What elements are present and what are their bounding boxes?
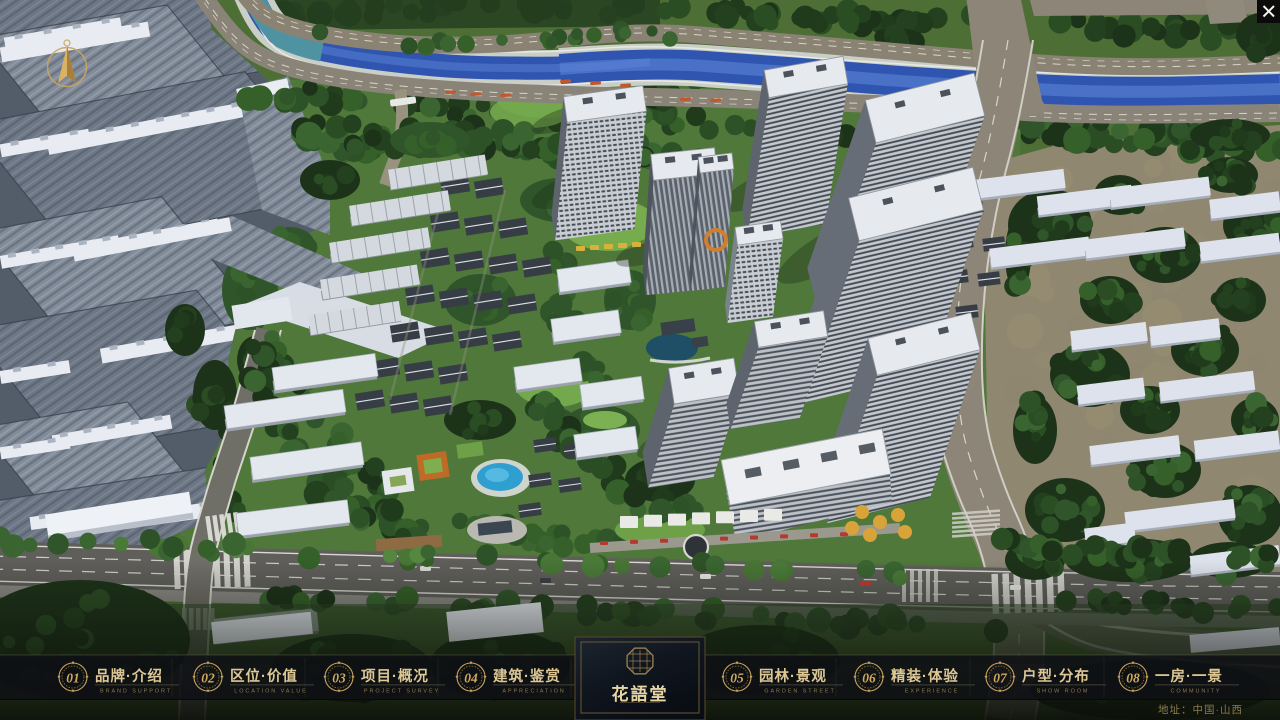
svg-text:LOCATION VALUE: LOCATION VALUE — [234, 689, 307, 695]
svg-text:地址：中国·山西: 地址：中国·山西 — [1158, 703, 1243, 716]
svg-text:05: 05 — [730, 671, 744, 686]
svg-text:品牌·介绍: 品牌·介绍 — [95, 667, 163, 685]
svg-text:PROJECT SURVEY: PROJECT SURVEY — [364, 689, 440, 695]
svg-text:园林·景观: 园林·景观 — [759, 667, 827, 685]
svg-text:BRAND SUPPORT: BRAND SUPPORT — [100, 689, 172, 695]
svg-text:06: 06 — [862, 671, 876, 686]
svg-text:一房·一景: 一房·一景 — [1155, 667, 1223, 685]
svg-text:EXPERIENCE: EXPERIENCE — [905, 689, 959, 695]
svg-text:01: 01 — [66, 671, 80, 686]
svg-text:建筑·鉴赏: 建筑·鉴赏 — [493, 667, 561, 685]
svg-text:03: 03 — [332, 671, 346, 686]
svg-text:04: 04 — [464, 671, 478, 686]
svg-text:07: 07 — [993, 671, 1008, 686]
svg-text:SHOW ROOM: SHOW ROOM — [1037, 689, 1090, 695]
svg-text:08: 08 — [1126, 671, 1140, 686]
svg-text:COMMUNITY: COMMUNITY — [1170, 689, 1221, 695]
svg-text:区位·价值: 区位·价值 — [230, 667, 298, 685]
svg-text:精装·体验: 精装·体验 — [891, 667, 959, 685]
svg-text:GARDEN STREET: GARDEN STREET — [764, 689, 835, 695]
svg-text:户型·分布: 户型·分布 — [1022, 667, 1090, 685]
svg-text:花語堂: 花語堂 — [612, 684, 669, 704]
svg-text:项目·概况: 项目·概况 — [361, 667, 429, 685]
svg-text:02: 02 — [201, 671, 215, 686]
svg-text:APPRECIATION: APPRECIATION — [502, 689, 565, 695]
